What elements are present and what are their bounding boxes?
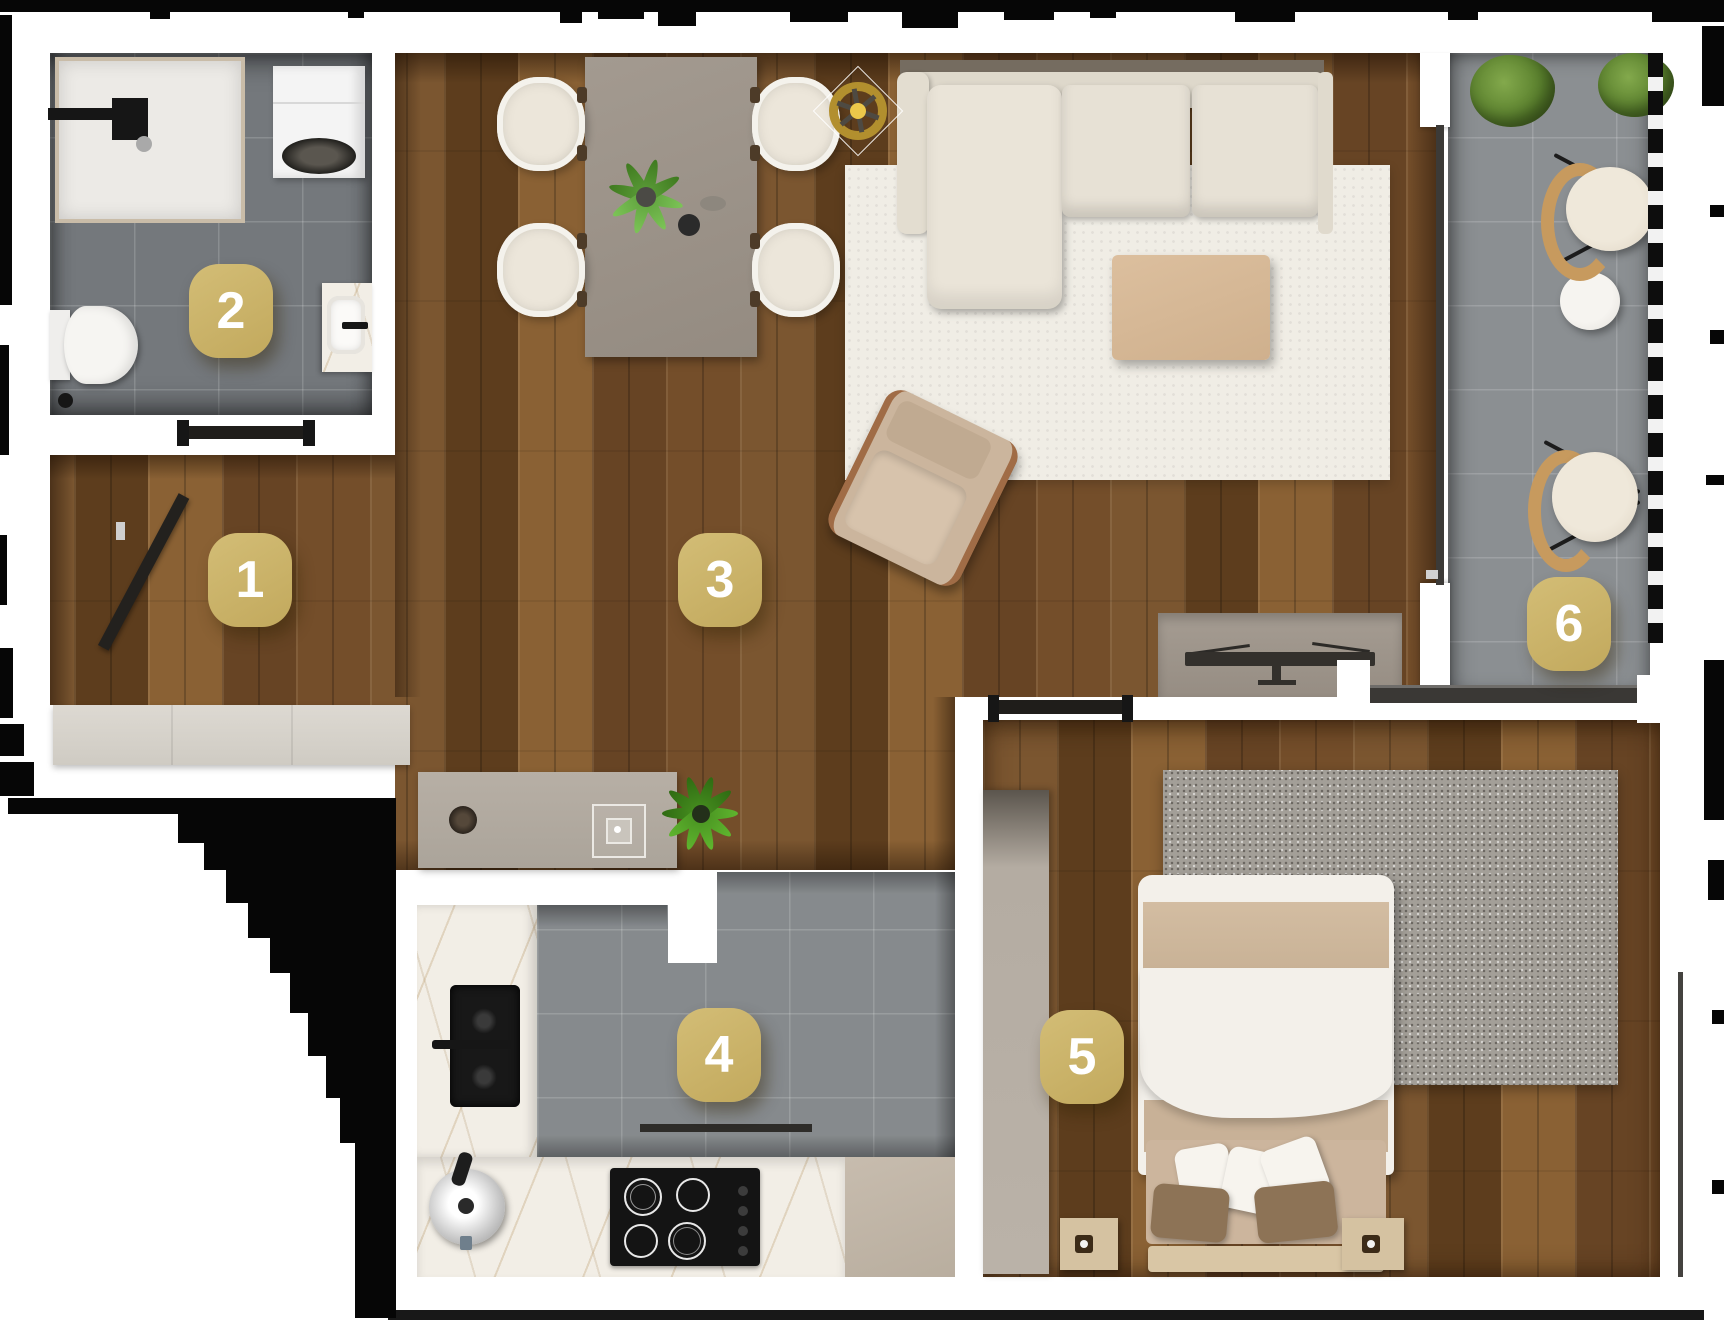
right-edge-mark	[1710, 205, 1724, 217]
sink-bowl-icon	[471, 1008, 497, 1034]
kitchen-faucet-icon	[432, 1040, 512, 1049]
room-number: 5	[1068, 1027, 1097, 1087]
top-edge-mark	[1652, 11, 1724, 22]
outer-mask-left	[0, 535, 7, 605]
room-number: 6	[1555, 594, 1584, 654]
top-edge-mark	[1235, 11, 1295, 22]
right-edge-mark	[1712, 1010, 1724, 1024]
kitchen-floor	[537, 845, 955, 1157]
table-cup-icon	[700, 196, 726, 211]
washing-machine-panel	[273, 102, 365, 104]
candle-dot-icon	[614, 826, 621, 833]
wall-stub	[1420, 53, 1450, 127]
room-number: 1	[236, 550, 265, 610]
door-jamb-icon	[1122, 695, 1133, 722]
sofa-arm-right	[1318, 72, 1333, 234]
door-handle-icon	[1426, 570, 1438, 579]
room-number: 2	[217, 281, 246, 341]
balcony-chair-cushion	[1552, 452, 1638, 542]
kettle-lid-icon	[458, 1198, 474, 1214]
top-edge-mark	[150, 11, 170, 19]
sofa-arm-left	[897, 72, 929, 234]
wall-stub	[1337, 660, 1370, 720]
right-edge-mark	[1710, 330, 1724, 344]
room-number: 3	[706, 550, 735, 610]
table-plant	[570, 135, 720, 260]
cooktop-knob-icon	[738, 1246, 748, 1256]
top-edge-mark	[560, 11, 582, 23]
kettle-spout-icon	[460, 1236, 472, 1250]
pillow-brown	[1253, 1180, 1338, 1244]
room-marker-6[interactable]: 6	[1527, 577, 1611, 671]
outer-mask-bottomleft	[8, 798, 396, 1322]
fern-pot-icon	[692, 805, 710, 823]
room-marker-1[interactable]: 1	[208, 533, 292, 627]
outer-mask-left	[0, 15, 12, 305]
outer-mask-bottom-line	[388, 1310, 1704, 1320]
balcony-railing	[1648, 53, 1663, 643]
top-edge-mark	[598, 11, 644, 19]
wardrobe	[983, 790, 1049, 1274]
cooktop-knob-icon	[738, 1226, 748, 1236]
range-hood-shadow	[640, 1124, 812, 1132]
table-bowl-icon	[678, 214, 700, 236]
sink-bowl-icon	[471, 1064, 497, 1090]
floor-plan-canvas: 1 2 3 4 5 6	[0, 0, 1724, 1343]
outer-mask-left	[0, 762, 34, 796]
cooktop-knob-icon	[738, 1206, 748, 1216]
plant-pot-icon	[636, 187, 656, 207]
nightstand-lamp-dot-icon	[1080, 1240, 1088, 1248]
bedroom-door-threshold	[997, 700, 1123, 714]
burner-icon	[676, 1178, 710, 1212]
door-jamb-icon	[988, 695, 999, 722]
shower-arm-icon	[48, 108, 114, 120]
toilet-bowl	[64, 306, 138, 384]
top-edge-mark	[1090, 11, 1116, 18]
outer-mask-left	[0, 648, 13, 718]
sink-faucet-icon	[342, 322, 368, 329]
kitchen-counter-tan	[845, 1157, 955, 1277]
balcony-table	[1560, 272, 1620, 330]
decor-bowl-icon	[449, 806, 477, 834]
pendant-bulb-icon	[850, 103, 866, 119]
toilet-flush-icon	[58, 393, 73, 408]
right-edge-mark	[1712, 1180, 1724, 1194]
room-marker-4[interactable]: 4	[677, 1008, 761, 1102]
wall-stub	[1637, 675, 1672, 723]
burner-icon	[624, 1224, 658, 1258]
right-edge-mark	[1708, 860, 1724, 900]
bedroom-window	[1678, 972, 1683, 1277]
bed-blanket	[1143, 902, 1389, 974]
cooktop-knob-icon	[738, 1186, 748, 1196]
hallway-closet	[53, 705, 410, 765]
cooktop	[610, 1168, 760, 1266]
sofa-seat-cushion	[1062, 85, 1190, 217]
door-jamb-icon	[303, 420, 315, 446]
sofa-chaise	[927, 85, 1062, 309]
outer-mask-left	[0, 345, 9, 455]
top-edge-mark	[348, 11, 364, 18]
pendant-light	[818, 60, 898, 162]
washing-machine-drum-icon	[282, 138, 356, 174]
bathroom-door-threshold	[187, 426, 310, 439]
burner-icon	[624, 1178, 662, 1216]
bed	[1138, 875, 1394, 1275]
top-edge-mark	[1448, 11, 1478, 20]
room-marker-3[interactable]: 3	[678, 533, 762, 627]
coffee-table	[1112, 255, 1270, 360]
outer-mask-left	[0, 724, 24, 756]
nightstand-lamp-dot-icon	[1367, 1240, 1375, 1248]
wall-stub	[1420, 583, 1450, 697]
outer-mask-right	[1704, 660, 1724, 820]
top-edge-mark	[1004, 11, 1054, 20]
top-edge-mark	[658, 11, 696, 26]
door-jamb-icon	[177, 420, 189, 446]
right-edge-mark	[1706, 475, 1724, 485]
top-edge-mark	[902, 11, 958, 28]
bedroom-balcony-slider	[1370, 685, 1637, 703]
tv-stand-base-icon	[1258, 680, 1296, 685]
pillow-brown	[1150, 1183, 1230, 1243]
fern-plant	[640, 755, 760, 880]
entry-door-handle-icon	[116, 522, 125, 540]
sofa-seat-cushion	[1192, 85, 1318, 217]
top-edge-mark	[790, 11, 848, 22]
room-marker-2[interactable]: 2	[189, 264, 273, 358]
balcony-glass-door	[1436, 125, 1444, 585]
burner-icon	[668, 1222, 706, 1260]
bed-duvet	[1140, 968, 1392, 1118]
outer-mask-right	[1702, 26, 1724, 106]
room-marker-5[interactable]: 5	[1040, 1010, 1124, 1104]
room-number: 4	[705, 1025, 734, 1085]
balcony-chair-cushion	[1566, 167, 1654, 251]
shower-head-icon	[112, 98, 148, 140]
dining-chair	[752, 223, 840, 317]
shower-drain-icon	[136, 136, 152, 152]
